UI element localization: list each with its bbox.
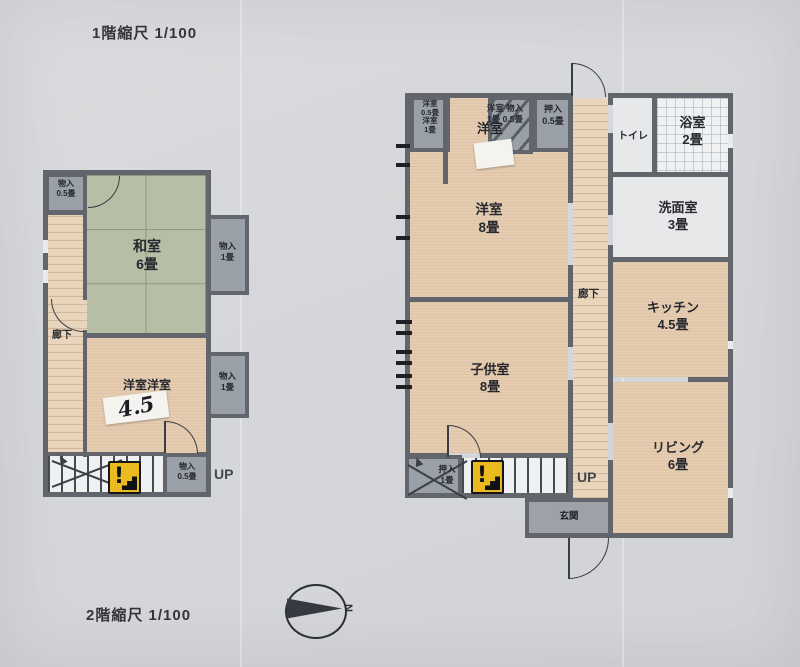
window-mark xyxy=(728,488,733,498)
closet-label: 物入 0.5畳 xyxy=(45,179,87,200)
closet-label: 押入 1畳 xyxy=(428,464,466,486)
wall xyxy=(83,330,87,457)
door-arc xyxy=(568,538,609,579)
wall xyxy=(608,245,613,423)
up-label: UP xyxy=(214,465,233,483)
wall xyxy=(688,377,733,382)
wall xyxy=(608,93,613,105)
closet-label: 押入 0.5畳 xyxy=(533,104,573,127)
exclamation-glyph: ! xyxy=(114,464,124,489)
handwritten-size: 4.5 xyxy=(116,391,157,423)
wall xyxy=(197,452,211,456)
exclamation-glyph: ! xyxy=(477,463,487,488)
door-leaf xyxy=(447,425,449,457)
correction-sticker xyxy=(474,139,515,169)
north-label: N xyxy=(342,604,354,612)
wall xyxy=(43,211,87,215)
door-leaf xyxy=(568,538,570,578)
window-tick xyxy=(396,361,412,365)
wall xyxy=(728,93,733,538)
stairs-glyph xyxy=(122,476,137,490)
entrance-label: 玄関 xyxy=(545,511,593,523)
window-tick xyxy=(396,385,412,389)
wall xyxy=(613,257,733,262)
wall xyxy=(405,297,573,302)
floor2-scale-title: 2階縮尺 1/100 xyxy=(86,604,191,625)
wall xyxy=(568,265,573,347)
paper-crease xyxy=(240,0,242,667)
wall xyxy=(87,333,211,338)
window-mark xyxy=(728,134,733,148)
door-arc xyxy=(572,63,606,97)
stairs-warning-icon: ! xyxy=(471,460,504,494)
window-tick xyxy=(396,350,412,354)
room-label-living: リビング 6畳 xyxy=(633,440,723,474)
wall xyxy=(568,380,573,498)
room-label-washroom: 洗面室 3畳 xyxy=(638,200,718,234)
wall xyxy=(613,172,733,177)
wall xyxy=(405,93,573,98)
floor1-scale-title: 1階縮尺 1/100 xyxy=(92,22,197,43)
closet-label: 洋室 0.5畳 洋室 1畳 xyxy=(410,100,450,135)
up-label: UP xyxy=(577,468,596,486)
wall xyxy=(480,453,573,458)
room-note-label: 洋室 xyxy=(473,121,507,138)
corridor-label: 廊下 xyxy=(578,288,599,302)
room-label-bath: 浴室 2畳 xyxy=(660,115,725,149)
door-leaf xyxy=(571,63,573,96)
window-tick xyxy=(396,320,412,324)
room-label-kids: 子供室 8畳 xyxy=(450,362,530,396)
room-label-washitsu: 和室 6畳 xyxy=(107,237,187,273)
wall xyxy=(608,93,733,98)
window-mark xyxy=(43,270,48,283)
door-leaf xyxy=(164,421,166,453)
corridor-label: 廊下 xyxy=(52,329,72,342)
stairs-warning-icon: ! xyxy=(108,461,141,494)
window-tick xyxy=(396,144,410,148)
wall xyxy=(43,170,211,175)
wall xyxy=(43,170,48,497)
window-tick xyxy=(396,236,410,240)
wall xyxy=(405,453,448,458)
wall xyxy=(608,460,613,538)
closet-label: 物入 0.5畳 xyxy=(163,462,211,483)
window-tick xyxy=(396,374,412,378)
room-label-toilet: トイレ xyxy=(611,130,655,143)
wall xyxy=(83,211,87,300)
window-tick xyxy=(396,215,410,219)
stairs-glyph xyxy=(485,476,500,490)
window-tick xyxy=(396,331,412,335)
window-mark xyxy=(728,341,733,349)
floorplan-sheet: 1階縮尺 1/100 2階縮尺 1/100 ! 物入 0.5畳 和室 6畳 物 xyxy=(0,0,800,667)
closet-label: 物入 1畳 xyxy=(206,241,249,263)
wall xyxy=(525,533,733,538)
closet-label: 物入 1畳 xyxy=(206,371,249,393)
room-label-youshitsu8: 洋室 8畳 xyxy=(449,201,529,236)
window-tick xyxy=(396,163,410,167)
window-mark xyxy=(43,240,48,253)
room-label-kitchen: キッチン 4.5畳 xyxy=(628,300,718,334)
